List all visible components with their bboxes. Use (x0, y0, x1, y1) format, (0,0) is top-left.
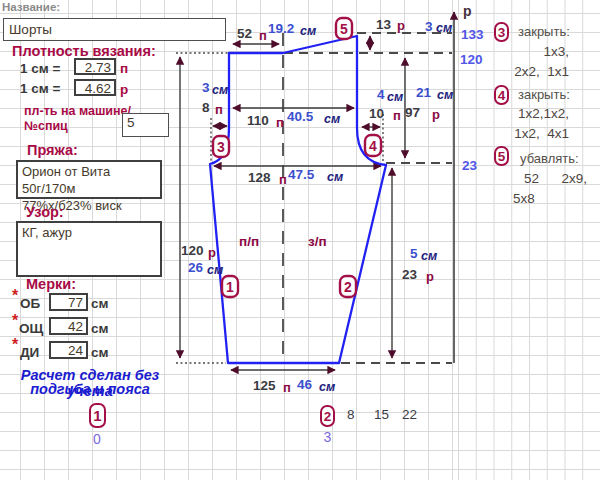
rows-axis-label: р (463, 3, 472, 19)
marker-3: 3 (217, 139, 225, 155)
density-title: Плотность вязания: (12, 43, 156, 59)
dim-upper-cm: 21 (416, 85, 432, 100)
schematic-markers: 3 4 5 1 2 (213, 18, 381, 297)
name-input[interactable]: Шорты (3, 18, 226, 41)
density-rows-input[interactable]: 4.62 (74, 79, 116, 96)
instruction-3-title: закрыть: (518, 24, 570, 39)
dim-length-cm-unit: см (207, 263, 223, 277)
dim-hem-unit: п (283, 380, 291, 395)
back-panel-label: з/п (308, 234, 327, 249)
dim-upper-rows-unit: р (432, 107, 440, 122)
axis-tick-120: 120 (460, 52, 483, 67)
thigh-girth-unit: см (91, 321, 109, 336)
dim-rise-unit: р (397, 18, 405, 33)
footer-marker-1: 1 (89, 403, 106, 428)
dim-hem-cm-unit: см (319, 380, 335, 394)
instruction-line: 2х2, 1х1 (497, 64, 569, 79)
instruction-5-title: убавлять: (520, 151, 579, 166)
name-label: Название: (2, 1, 60, 13)
footer-row-number: 8 (347, 407, 355, 422)
dim-left-ext-cm: 3 (202, 80, 210, 95)
required-star: * (12, 312, 18, 330)
front-panel-label: п/п (239, 234, 259, 249)
yarn-input[interactable]: Орион от Вита 50г/170м 77%х/б23% виск (16, 160, 162, 199)
dim-seat-st: 128 (248, 170, 271, 185)
hip-girth-label: ОБ (20, 296, 40, 311)
machine-label-line2: №спиц (24, 119, 68, 133)
required-star: * (12, 287, 18, 305)
instruction-line: 52 2х9, (524, 171, 587, 186)
dim-seat-unit: п (279, 172, 287, 187)
axis-tick-133: 133 (461, 27, 484, 42)
density-stitches-input[interactable]: 2.73 (74, 58, 116, 75)
machine-gauge-input[interactable]: 5 (122, 113, 169, 137)
instruction-3-lines: 1х3, 2х2, 1х1 (497, 44, 569, 83)
yarn-line1: Орион от Вита 50г/170м (22, 163, 156, 197)
axis-tick-23: 23 (462, 158, 478, 173)
footer-marker-2-value: 3 (316, 429, 339, 445)
instruction-line: 1х3, (497, 44, 569, 59)
dim-top-width-cm: 19.2 (268, 21, 294, 36)
instruction-line: 1х2, 4х1 (497, 126, 569, 141)
instruction-3-marker: 3 (494, 22, 509, 42)
thigh-girth-input[interactable]: 42 (49, 317, 88, 335)
dim-left-ext-cm-unit: см (212, 83, 228, 97)
dim-hip-cm: 40.5 (287, 109, 314, 124)
footer-row-number: 22 (402, 407, 417, 422)
disclaimer-line2: подгиба и пояса (0, 381, 180, 397)
dim-lower-rows-unit: р (426, 269, 434, 284)
hip-girth-input[interactable]: 77 (49, 293, 88, 311)
dim-hem-cm: 46 (297, 377, 313, 392)
knitting-calculator-window: 52 п 19.2 см 13 р 3 см 110 п 40.5 см 3 с… (0, 0, 600, 480)
marker-2: 2 (344, 279, 352, 295)
density-row1-label: 1 см = (20, 61, 60, 76)
dim-upper-rows: 97 (405, 105, 420, 120)
marker-5: 5 (340, 21, 348, 37)
dim-left-ext-unit: п (215, 102, 223, 117)
hip-girth-unit: см (91, 296, 109, 311)
dim-rise-rows: 13 (376, 17, 392, 32)
length-unit: см (91, 345, 109, 360)
dim-seat-cm: 47.5 (288, 167, 315, 182)
density-row2-unit: р (120, 82, 128, 97)
length-input[interactable]: 24 (49, 341, 88, 359)
dim-length-rows: 120 (181, 243, 204, 258)
dim-lower-cm: 5 (410, 246, 418, 261)
density-row2-label: 1 см = (20, 81, 60, 96)
instruction-4-marker: 4 (494, 85, 509, 105)
dim-rise-cm: 3 (425, 19, 433, 34)
measurements-title: Мерки: (26, 276, 76, 292)
dashed-row-lines (284, 33, 452, 363)
required-star: * (12, 336, 18, 354)
dim-left-ext-st: 8 (202, 100, 210, 115)
density-row1-unit: п (120, 61, 128, 76)
footer-marker-1-value: 0 (85, 431, 109, 447)
pattern-input[interactable]: КГ, ажур (16, 221, 162, 277)
dim-length-rows-unit: р (208, 245, 216, 260)
footer-row-number: 15 (374, 407, 389, 422)
dim-hip-st: 110 (247, 113, 269, 128)
dim-right-ext-cm-unit: см (387, 90, 403, 104)
dim-hem-st: 125 (253, 378, 276, 393)
length-label: ДИ (20, 345, 39, 360)
dim-hip-cm-unit: см (324, 112, 340, 126)
yarn-title: Пряжа: (27, 142, 78, 158)
instruction-line: 1х2,1х2, (497, 106, 569, 121)
dim-right-ext-cm: 4 (377, 87, 385, 102)
machine-label-line1: пл-ть на машине/ (24, 104, 131, 118)
footer-marker-2: 2 (320, 405, 335, 427)
dim-upper-cm-unit: см (437, 88, 453, 102)
dim-hip-unit: п (276, 115, 284, 130)
dim-seat-cm-unit: см (327, 170, 343, 184)
dim-top-width-st: 52 (237, 26, 252, 41)
instruction-4-lines: 1х2,1х2, 1х2, 4х1 (497, 106, 569, 145)
shorts-outline (210, 36, 386, 363)
dim-top-width-cm-unit: см (300, 24, 316, 38)
instruction-line: 5х8 (513, 191, 535, 206)
dim-lower-rows: 23 (402, 267, 418, 282)
dim-top-width-unit: п (259, 28, 267, 43)
dim-lower-cm-unit: см (421, 249, 437, 263)
pattern-title: Узор: (26, 204, 64, 220)
instruction-5-marker: 5 (494, 146, 509, 166)
thigh-girth-label: ОЩ (19, 321, 43, 336)
marker-1: 1 (226, 279, 234, 295)
marker-4: 4 (369, 138, 377, 154)
dim-length-cm: 26 (188, 260, 204, 275)
dim-right-ext-unit: п (393, 108, 401, 123)
dim-rise-cm-unit: см (436, 21, 452, 35)
dim-right-ext-st: 10 (369, 106, 384, 121)
instruction-4-title: закрыть: (518, 87, 570, 102)
